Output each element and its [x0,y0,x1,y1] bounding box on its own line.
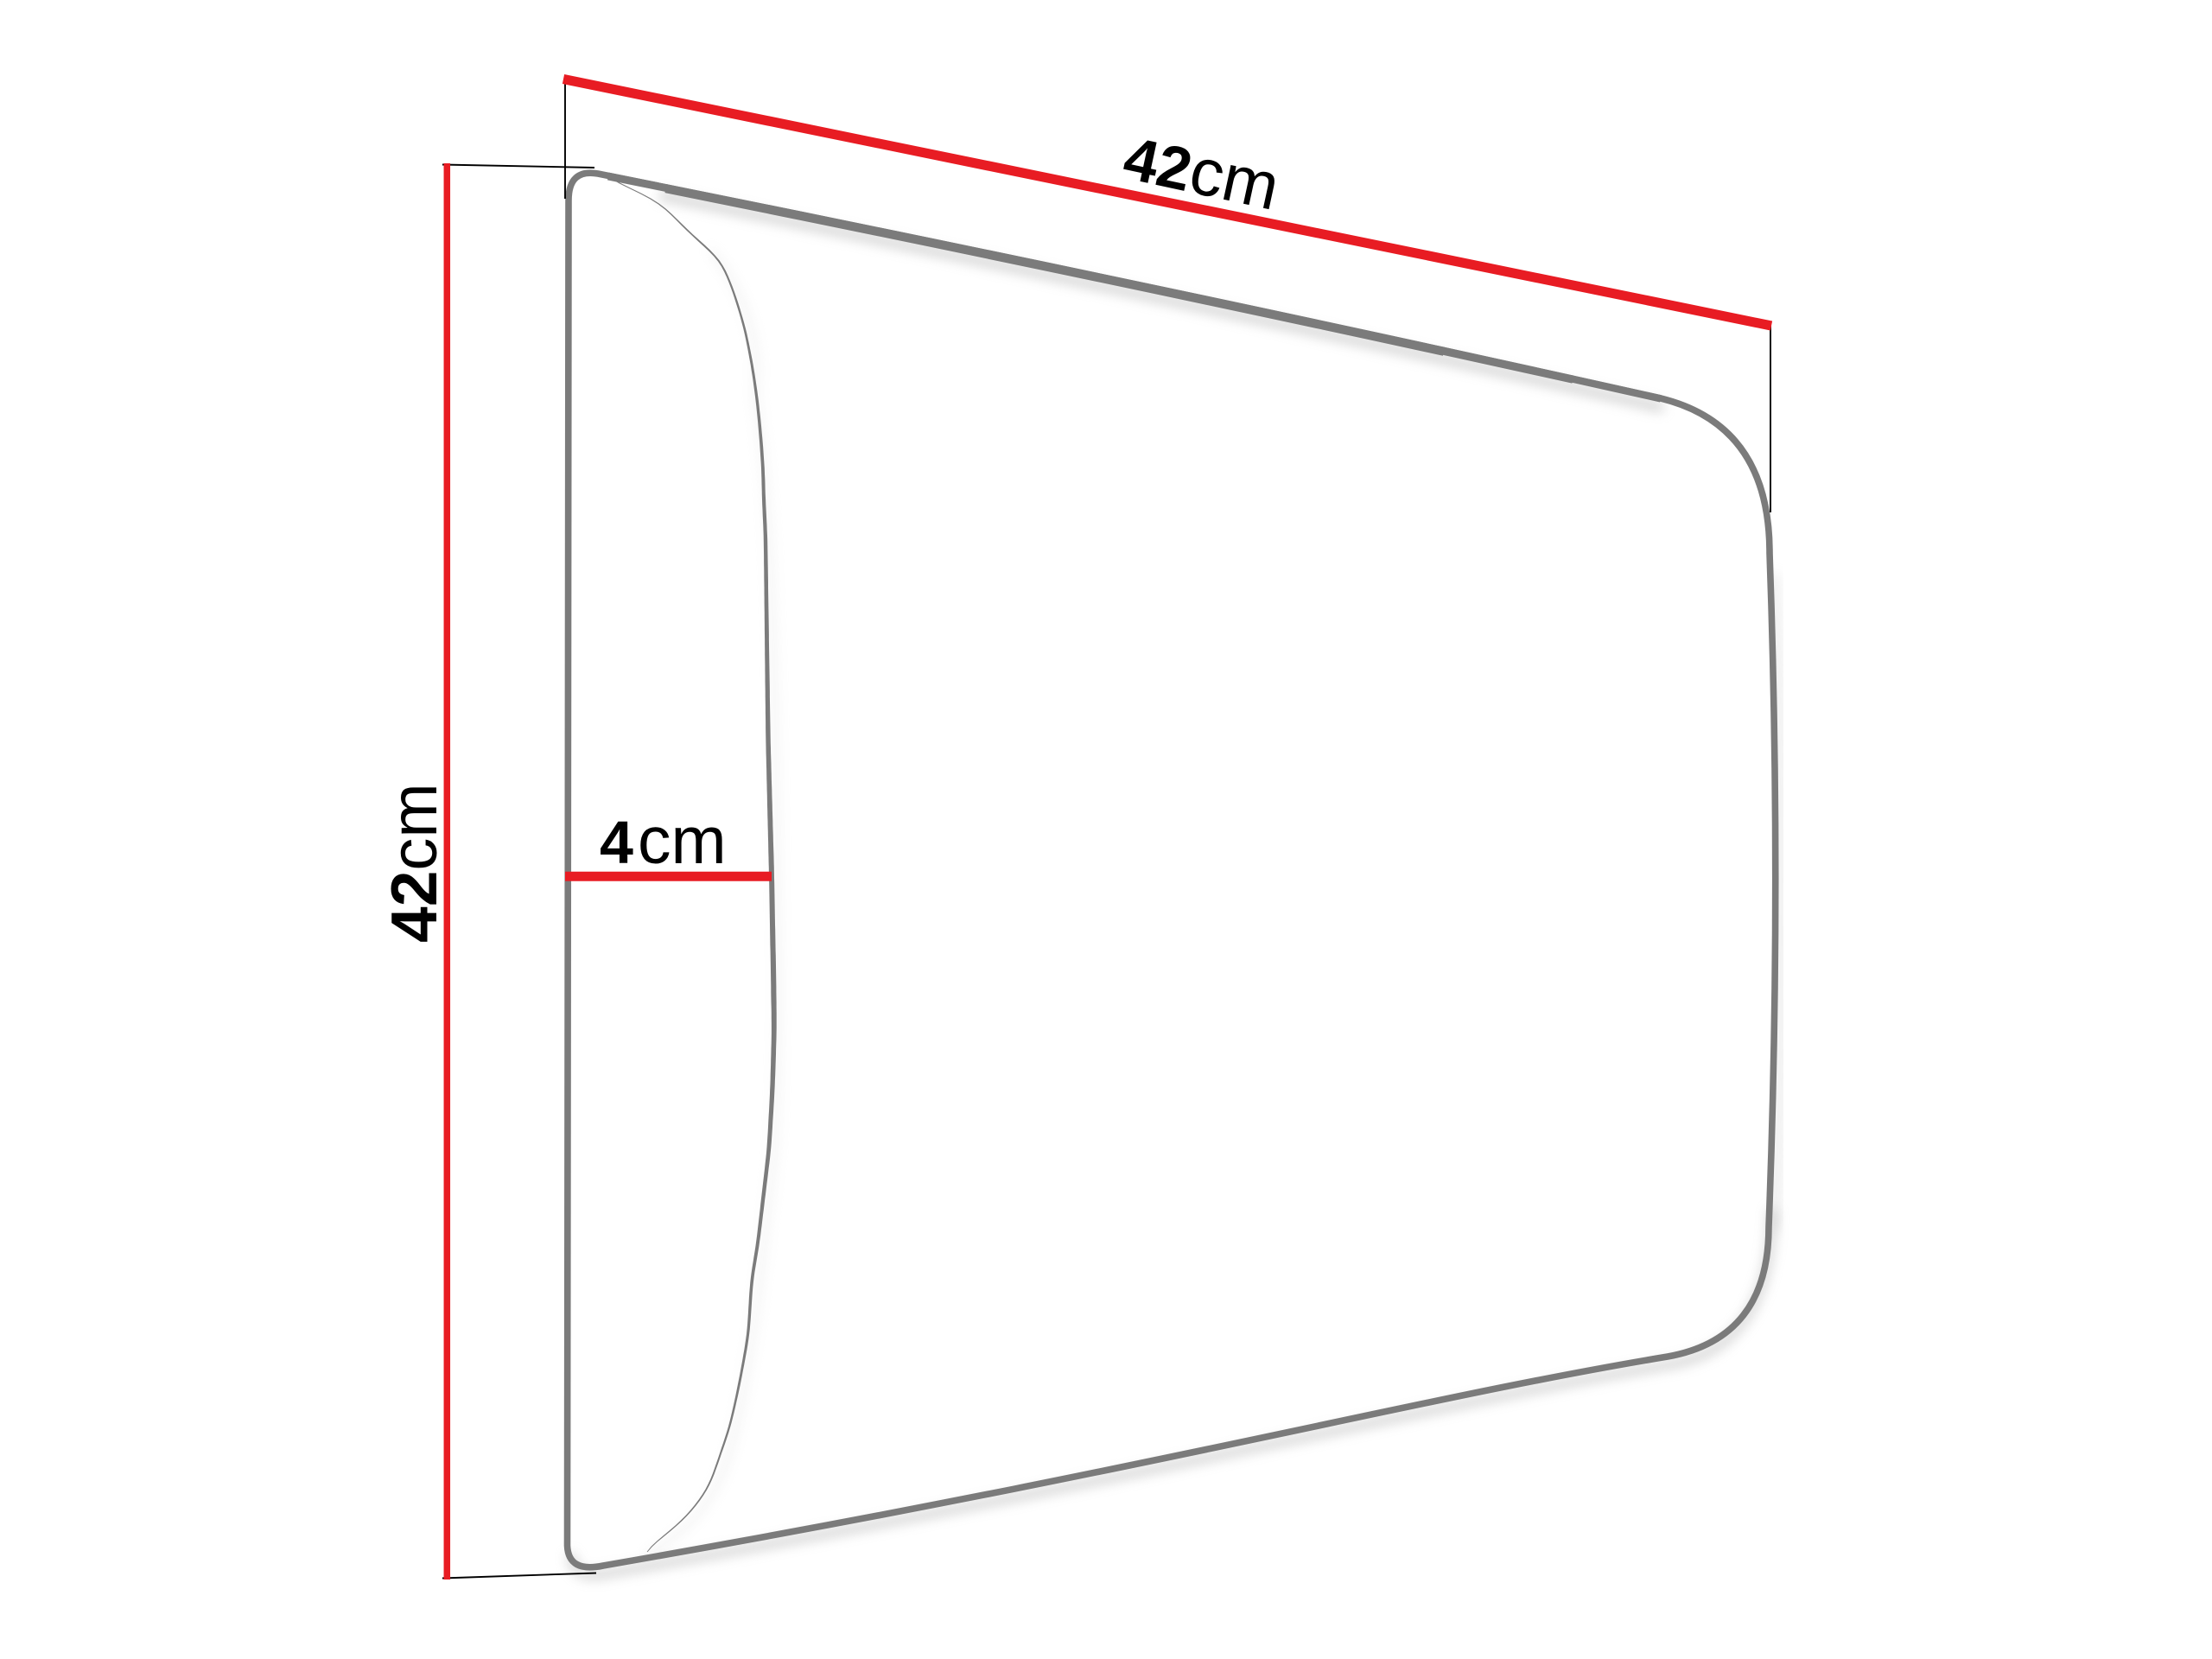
svg-text:4cm: 4cm [600,804,727,878]
svg-text:42cm: 42cm [378,783,451,943]
